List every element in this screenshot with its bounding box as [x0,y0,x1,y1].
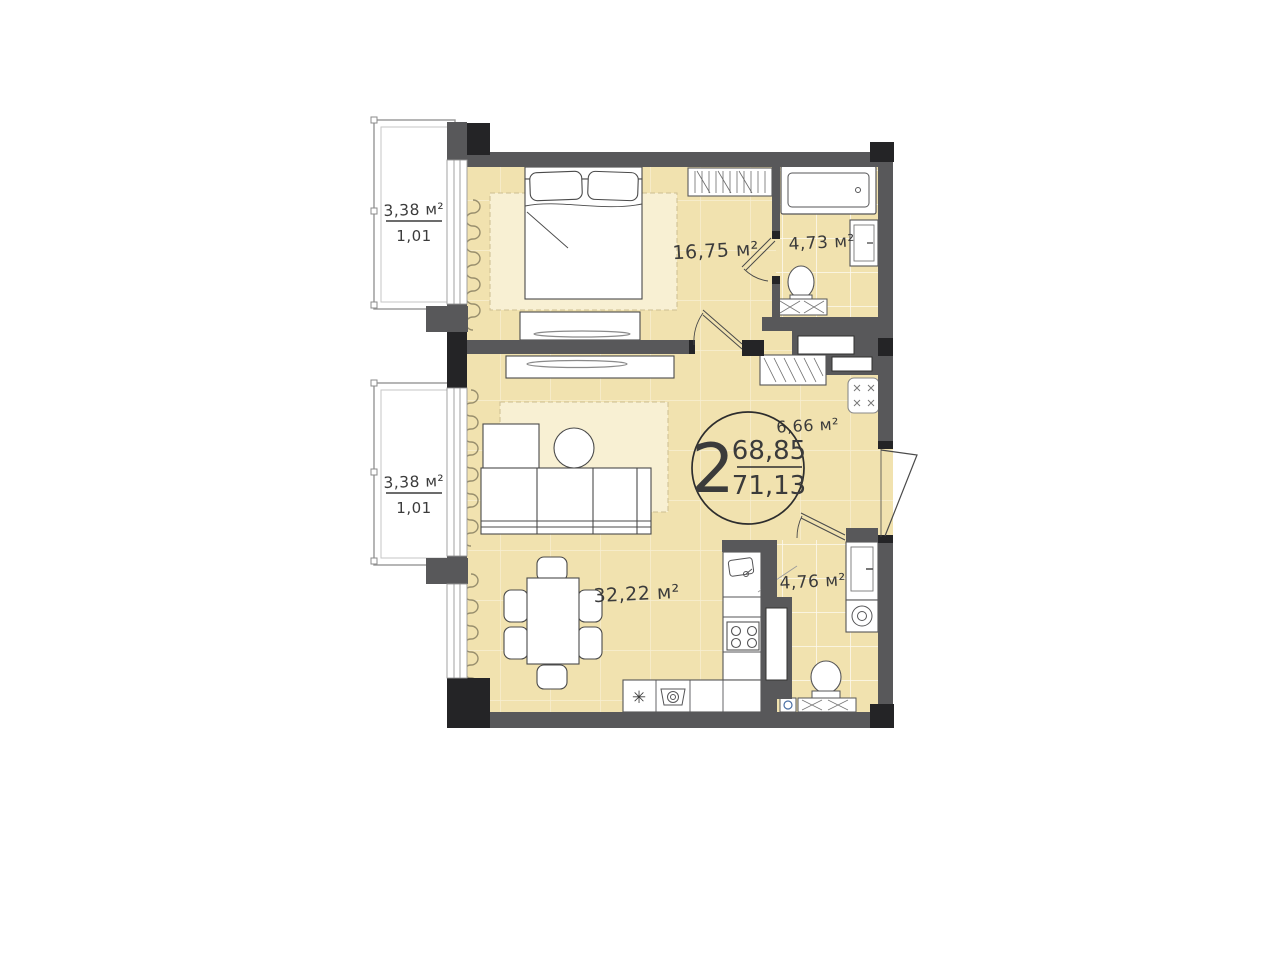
bedroom-wardrobe [688,168,772,196]
dining-chair [537,557,567,581]
bathroom-bottom-area-label: 4,76 м² [779,570,846,593]
floor-plan-canvas: ✳ [0,0,1280,963]
rooms-count: 2 [691,430,734,509]
dining-chair [578,627,602,659]
coffee-table [554,428,594,468]
area-main: 68,85 [732,436,806,466]
washbasin-icon [777,299,827,315]
kitchen-counter-vertical [723,552,761,680]
doormat [848,378,879,413]
dining-chair [537,665,567,689]
dining-chair [504,590,528,622]
bathroom-top-area-label: 4,73 м² [788,231,855,254]
living-area-label: 32,22 м² [593,581,680,607]
balcony-top-coefficient-label: 1,01 [396,227,431,245]
toilet-bottom-icon [811,661,841,700]
dining-table [527,578,579,664]
washbasin-bottom-icon [780,698,856,712]
bathtub-icon [781,166,876,214]
toilet-icon [788,266,814,304]
window-bedroom [447,160,467,304]
bedroom-dresser [520,312,640,340]
bed [525,167,642,299]
balcony-bottom-coefficient-label: 1,01 [396,499,431,517]
washing-machine-drum-icon [846,600,878,632]
balcony-bottom-area-label: 3,38 м² [383,472,444,492]
balcony-top-area-label: 3,38 м² [383,200,444,220]
floor-plan-page: ✳ [0,0,1280,963]
tv-stand [506,356,674,378]
fridge-asterisk-icon: ✳ [632,688,646,708]
dining-chair [504,627,528,659]
window-living-1 [447,388,467,556]
windows [447,160,467,678]
bedroom-area-label: 16,75 м² [672,238,759,264]
window-living-2 [447,584,467,678]
kitchen-counter-bottom: ✳ [623,680,761,712]
bathroom-bottom-cabinet [846,542,878,600]
hall-wardrobe [760,355,826,385]
area-total: 71,13 [732,471,806,501]
